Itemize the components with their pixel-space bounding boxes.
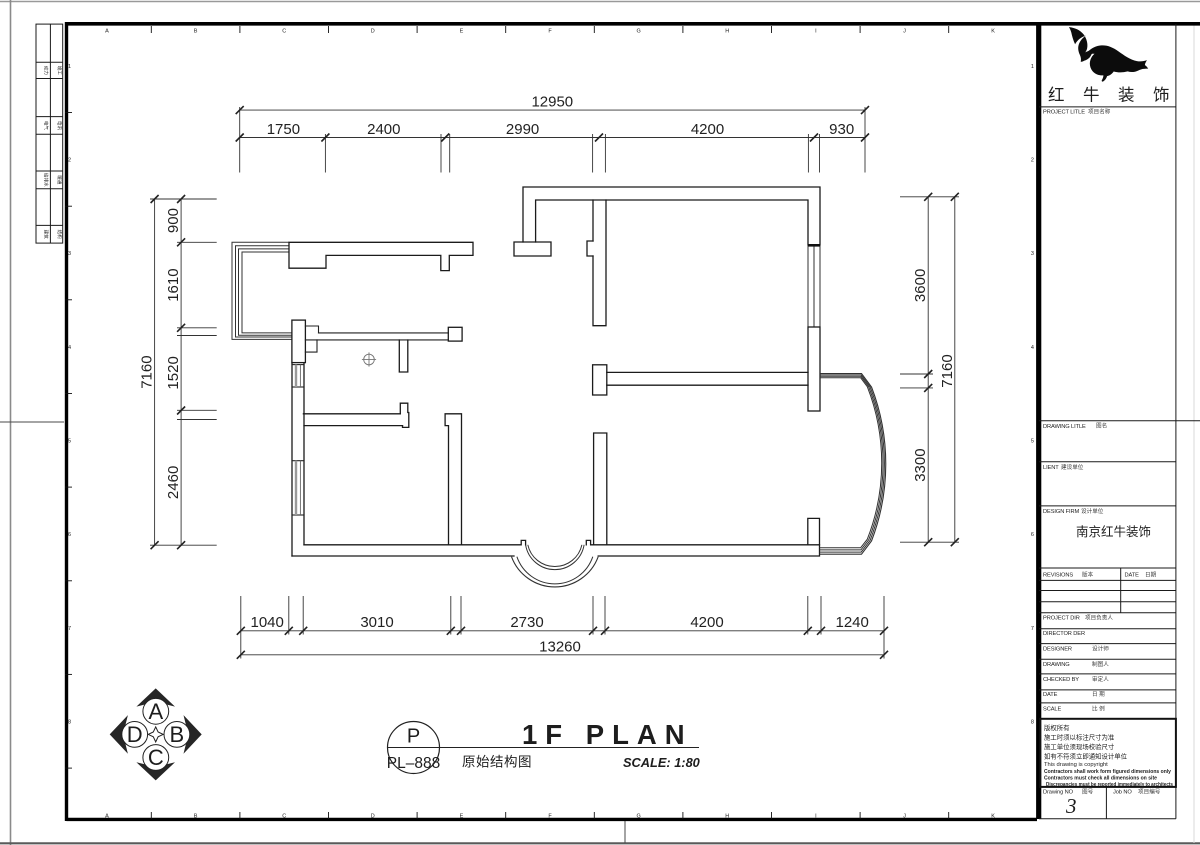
svg-text:4200: 4200 [690,614,723,631]
svg-text:7: 7 [68,626,71,632]
svg-text:H: H [725,29,729,35]
svg-text:日 期: 日 期 [1092,691,1105,698]
svg-text:1520: 1520 [165,356,182,389]
svg-text:3010: 3010 [360,614,393,631]
svg-text:Job NO: Job NO [1113,790,1132,796]
svg-text:设计单位: 设计单位 [1081,507,1104,515]
svg-text:8: 8 [1031,720,1034,726]
svg-text:LIENT: LIENT [1043,465,1059,471]
svg-text:1750: 1750 [267,121,300,138]
svg-text:A: A [148,699,163,724]
svg-text:C: C [148,745,164,770]
svg-text:版权所有: 版权所有 [1044,723,1070,732]
svg-text:4: 4 [68,345,71,351]
svg-text:This drawing is copyright: This drawing is copyright [1044,762,1108,768]
svg-text:P: P [407,726,420,748]
svg-text:2460: 2460 [165,466,182,499]
svg-text:1F PLAN: 1F PLAN [522,719,693,750]
svg-text:Contractors shall work form fi: Contractors shall work form figured dime… [1044,769,1172,775]
svg-text:施工时须以标注尺寸为准: 施工时须以标注尺寸为准 [1044,733,1115,742]
svg-text:D: D [371,29,375,35]
svg-text:C: C [282,29,286,35]
svg-text:J: J [903,29,906,35]
svg-text:建筑: 建筑 [43,230,50,240]
svg-text:2730: 2730 [510,614,543,631]
svg-text:J: J [903,813,906,819]
svg-text:900: 900 [165,208,182,233]
svg-text:南京红牛装饰: 南京红牛装饰 [1076,524,1151,539]
svg-text:图号: 图号 [1082,787,1094,795]
svg-text:日期: 日期 [1145,571,1157,578]
svg-text:A: A [105,29,109,35]
svg-text:3300: 3300 [912,448,929,481]
svg-text:项目负责人: 项目负责人 [1085,613,1113,621]
svg-text:PROJECT LITLE: PROJECT LITLE [1043,110,1085,116]
svg-text:如有不符须立即通知设计单位: 如有不符须立即通知设计单位 [1044,752,1128,761]
svg-text:PL–888: PL–888 [387,755,440,772]
svg-text:7160: 7160 [139,355,156,388]
svg-text:建设单位: 建设单位 [1061,463,1084,471]
svg-text:1240: 1240 [836,614,869,631]
svg-text:H: H [725,813,729,819]
svg-text:给排水: 给排水 [43,173,50,187]
svg-text:2: 2 [68,158,71,164]
svg-text:施工单位须现场校验尺寸: 施工单位须现场校验尺寸 [1044,742,1115,751]
svg-text:12950: 12950 [531,94,573,111]
svg-text:5: 5 [1031,439,1034,445]
svg-text:DATE: DATE [1043,692,1058,698]
svg-text:B: B [194,29,198,35]
svg-text:4: 4 [1031,345,1034,351]
svg-text:2990: 2990 [506,121,539,138]
svg-text:1: 1 [68,64,71,70]
svg-text:E: E [460,813,464,819]
svg-text:版本: 版本 [1082,570,1094,578]
svg-text:D: D [371,813,375,819]
svg-text:6: 6 [1031,532,1034,538]
svg-text:原始结构图: 原始结构图 [462,755,532,770]
svg-text:DRAWING LITLE: DRAWING LITLE [1043,424,1086,430]
svg-text:制图人: 制图人 [1092,660,1109,668]
svg-text:7160: 7160 [939,354,956,387]
svg-text:动力: 动力 [43,66,50,76]
svg-text:图名: 图名 [1096,422,1107,430]
svg-text:G: G [637,813,641,819]
svg-text:竣工: 竣工 [56,66,63,76]
svg-text:Discrepancies must be reported: Discrepancies must be reported immediate… [1046,782,1174,788]
svg-text:比 例: 比 例 [1092,704,1105,712]
svg-text:DIRECTOR DER: DIRECTOR DER [1043,631,1085,637]
svg-text:CHECKED BY: CHECKED BY [1043,677,1079,683]
svg-text:K: K [991,29,995,35]
svg-text:B: B [194,813,198,819]
svg-text:5: 5 [68,439,71,445]
svg-text:DATE: DATE [1125,573,1140,579]
svg-text:结构: 结构 [56,230,63,240]
svg-text:项目名称: 项目名称 [1088,107,1111,115]
svg-text:审定人: 审定人 [1092,675,1109,683]
svg-text:电气: 电气 [44,121,50,131]
svg-text:DESIGNER: DESIGNER [1043,647,1072,653]
svg-text:930: 930 [829,121,854,138]
svg-text:3: 3 [1065,794,1077,818]
svg-text:REVISIONS: REVISIONS [1043,573,1073,579]
svg-text:DRAWING: DRAWING [1043,662,1070,668]
svg-text:Contractors must check all dim: Contractors must check all dimensions on… [1044,776,1158,782]
svg-text:A: A [105,813,109,819]
svg-text:2400: 2400 [367,121,400,138]
svg-text:3: 3 [68,251,71,257]
svg-text:13260: 13260 [539,638,581,655]
svg-text:8: 8 [68,720,71,726]
svg-text:SCALE: 1:80: SCALE: 1:80 [623,755,700,770]
svg-text:B: B [170,722,185,747]
svg-text:PROJECT DIR: PROJECT DIR [1043,616,1080,622]
svg-text:3: 3 [1031,251,1034,257]
svg-text:1610: 1610 [165,268,182,301]
svg-text:E: E [460,29,464,35]
svg-text:暖通: 暖通 [56,175,63,185]
svg-text:电讯: 电讯 [56,121,63,131]
svg-text:G: G [637,29,641,35]
svg-text:C: C [282,813,286,819]
svg-text:D: D [127,722,143,747]
svg-text:设计师: 设计师 [1092,645,1109,653]
svg-text:1: 1 [1031,64,1034,70]
svg-text:SCALE: SCALE [1043,707,1061,713]
svg-text:K: K [991,813,995,819]
svg-text:项目编号: 项目编号 [1138,787,1161,795]
svg-text:7: 7 [1031,626,1034,632]
svg-text:2: 2 [1031,158,1034,164]
svg-text:4200: 4200 [691,121,724,138]
svg-text:1040: 1040 [251,614,284,631]
svg-text:红牛装饰: 红牛装饰 [1048,86,1188,105]
svg-text:6: 6 [68,532,71,538]
svg-text:3600: 3600 [912,269,929,302]
svg-text:DESIGN FIRM: DESIGN FIRM [1043,509,1080,515]
